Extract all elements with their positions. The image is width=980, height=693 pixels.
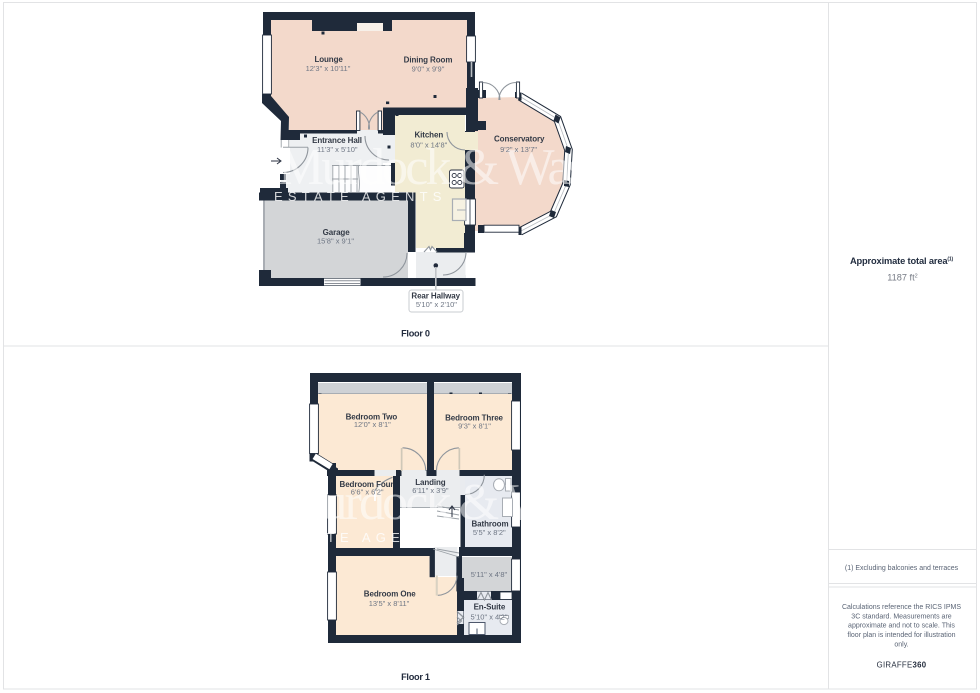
- svg-text:1187 ft2: 1187 ft2: [887, 273, 917, 283]
- svg-text:5'10" x 4'2": 5'10" x 4'2": [471, 612, 508, 621]
- svg-text:En-Suite: En-Suite: [474, 602, 506, 611]
- svg-text:Bedroom One: Bedroom One: [364, 589, 416, 598]
- svg-text:3C standard. Measurements are: 3C standard. Measurements are: [851, 613, 951, 620]
- svg-text:Lounge: Lounge: [314, 55, 343, 64]
- svg-text:floor plan is intended for ill: floor plan is intended for illustration: [847, 632, 955, 639]
- svg-text:Approximate total area(1): Approximate total area(1): [850, 256, 954, 266]
- svg-text:only.: only.: [894, 641, 908, 648]
- svg-text:6'6" x 6'2": 6'6" x 6'2": [351, 487, 384, 496]
- svg-text:9'0" x 9'9": 9'0" x 9'9": [412, 64, 445, 73]
- svg-text:11'3" x 5'10": 11'3" x 5'10": [317, 145, 358, 154]
- svg-text:Floor 1: Floor 1: [401, 672, 430, 682]
- svg-text:approximate and not to scale.: approximate and not to scale. This: [848, 623, 955, 630]
- svg-text:12'0" x 8'1": 12'0" x 8'1": [354, 420, 391, 429]
- svg-text:13'5" x 8'11": 13'5" x 8'11": [369, 599, 410, 608]
- svg-text:Dining Room: Dining Room: [404, 56, 453, 65]
- svg-text:Entrance Hall: Entrance Hall: [312, 136, 362, 145]
- svg-text:Conservatory: Conservatory: [494, 134, 545, 143]
- svg-text:8'0" x 14'8": 8'0" x 14'8": [410, 140, 447, 149]
- svg-text:12'3" x 10'11": 12'3" x 10'11": [306, 64, 351, 73]
- svg-text:GIRAFFE360: GIRAFFE360: [877, 660, 927, 669]
- svg-text:Calculations reference the RIC: Calculations reference the RICS IPMS: [842, 604, 961, 611]
- svg-text:ESTATE AGENTS: ESTATE AGENTS: [274, 189, 446, 204]
- svg-text:Floor 0: Floor 0: [401, 329, 430, 339]
- svg-text:5'5" x 8'2": 5'5" x 8'2": [473, 528, 506, 537]
- svg-text:Rear Hallway: Rear Hallway: [411, 291, 460, 300]
- svg-text:15'8" x 9'1": 15'8" x 9'1": [317, 237, 354, 246]
- svg-text:Kitchen: Kitchen: [414, 131, 443, 140]
- svg-text:5'11" x 4'8": 5'11" x 4'8": [471, 570, 508, 579]
- svg-text:ESTATE AGENTS: ESTATE AGENTS: [274, 530, 446, 545]
- svg-text:(1) Excluding balconies and te: (1) Excluding balconies and terraces: [845, 565, 959, 572]
- svg-text:9'2" x 13'7": 9'2" x 13'7": [500, 145, 537, 154]
- svg-text:5'10" x 2'10": 5'10" x 2'10": [416, 300, 457, 309]
- svg-text:6'11" x 3'9": 6'11" x 3'9": [412, 486, 449, 495]
- svg-text:Garage: Garage: [323, 228, 351, 237]
- svg-text:9'3" x 8'1": 9'3" x 8'1": [458, 421, 491, 430]
